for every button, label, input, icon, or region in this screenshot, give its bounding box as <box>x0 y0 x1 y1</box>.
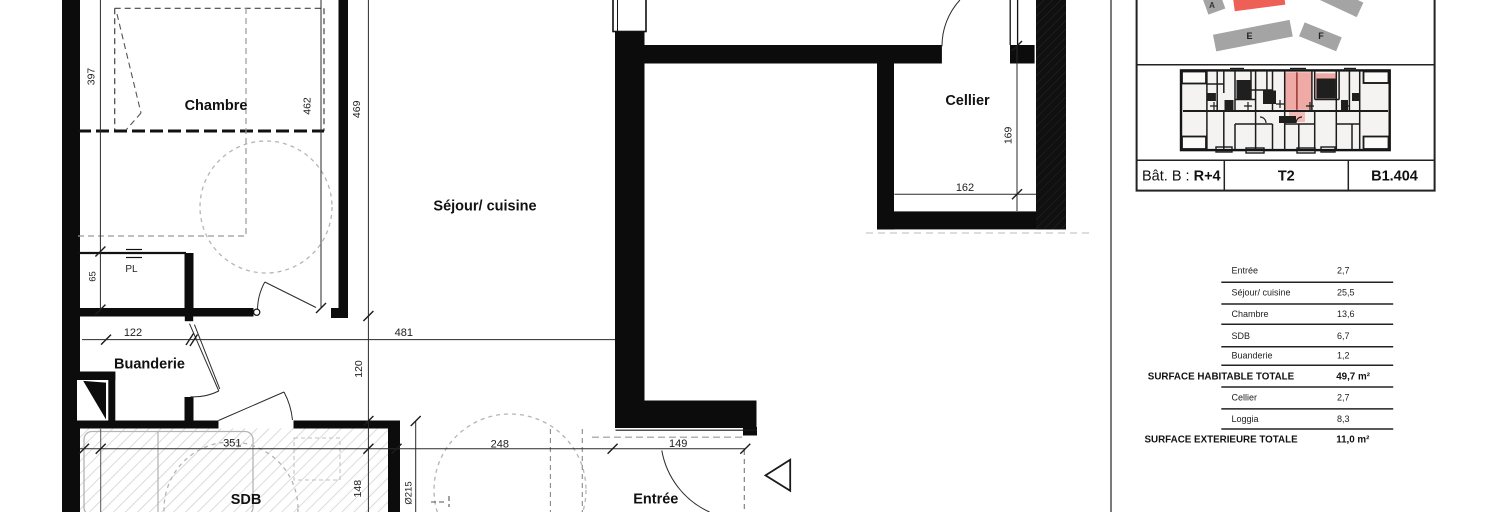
svg-text:F: F <box>1318 31 1324 41</box>
svg-text:65: 65 <box>88 271 99 282</box>
svg-text:E: E <box>1246 31 1252 41</box>
svg-text:351: 351 <box>223 438 241 450</box>
svg-text:Bât. B : R+4: Bât. B : R+4 <box>1142 169 1221 185</box>
svg-text:481: 481 <box>395 327 413 339</box>
svg-text:25,5: 25,5 <box>1337 288 1355 298</box>
svg-text:Entrée: Entrée <box>1232 266 1259 276</box>
svg-text:Ø215: Ø215 <box>404 481 415 504</box>
svg-text:122: 122 <box>124 327 142 339</box>
svg-text:162: 162 <box>956 182 974 194</box>
svg-text:248: 248 <box>491 439 509 451</box>
svg-text:B1.404: B1.404 <box>1371 169 1418 185</box>
svg-text:SDB: SDB <box>1232 331 1251 341</box>
svg-text:Chambre: Chambre <box>1232 309 1269 319</box>
svg-text:6,7: 6,7 <box>1337 331 1350 341</box>
svg-text:397: 397 <box>86 68 98 86</box>
svg-text:11,0 m²: 11,0 m² <box>1336 435 1370 446</box>
svg-text:462: 462 <box>302 97 314 115</box>
svg-text:169: 169 <box>1003 126 1015 144</box>
svg-text:Séjour/ cuisine: Séjour/ cuisine <box>1232 288 1291 298</box>
svg-text:8,3: 8,3 <box>1337 414 1350 424</box>
svg-text:SURFACE HABITABLE TOTALE: SURFACE HABITABLE TOTALE <box>1148 372 1295 383</box>
svg-text:Buanderie: Buanderie <box>114 357 185 373</box>
svg-text:Cellier: Cellier <box>945 93 990 109</box>
svg-text:469: 469 <box>351 100 363 118</box>
svg-text:Loggia: Loggia <box>1232 414 1259 424</box>
svg-text:Entrée: Entrée <box>633 492 678 508</box>
svg-text:2,7: 2,7 <box>1337 392 1350 402</box>
svg-text:Séjour/ cuisine: Séjour/ cuisine <box>433 199 536 215</box>
svg-text:149: 149 <box>669 438 687 450</box>
svg-text:148: 148 <box>352 480 364 498</box>
svg-text:49,7 m²: 49,7 m² <box>1336 372 1371 383</box>
svg-text:A: A <box>1209 1 1215 10</box>
svg-text:Buanderie: Buanderie <box>1232 350 1273 360</box>
svg-text:2,7: 2,7 <box>1337 266 1350 276</box>
svg-text:13,6: 13,6 <box>1337 309 1355 319</box>
svg-text:SURFACE EXTERIEURE TOTALE: SURFACE EXTERIEURE TOTALE <box>1145 435 1299 446</box>
svg-text:Cellier: Cellier <box>1232 392 1258 402</box>
svg-text:SDB: SDB <box>231 492 262 508</box>
svg-text:PL: PL <box>125 264 138 275</box>
svg-text:T2: T2 <box>1278 169 1295 185</box>
svg-text:1,2: 1,2 <box>1337 350 1350 360</box>
svg-text:Chambre: Chambre <box>185 98 248 114</box>
svg-text:120: 120 <box>353 360 365 378</box>
